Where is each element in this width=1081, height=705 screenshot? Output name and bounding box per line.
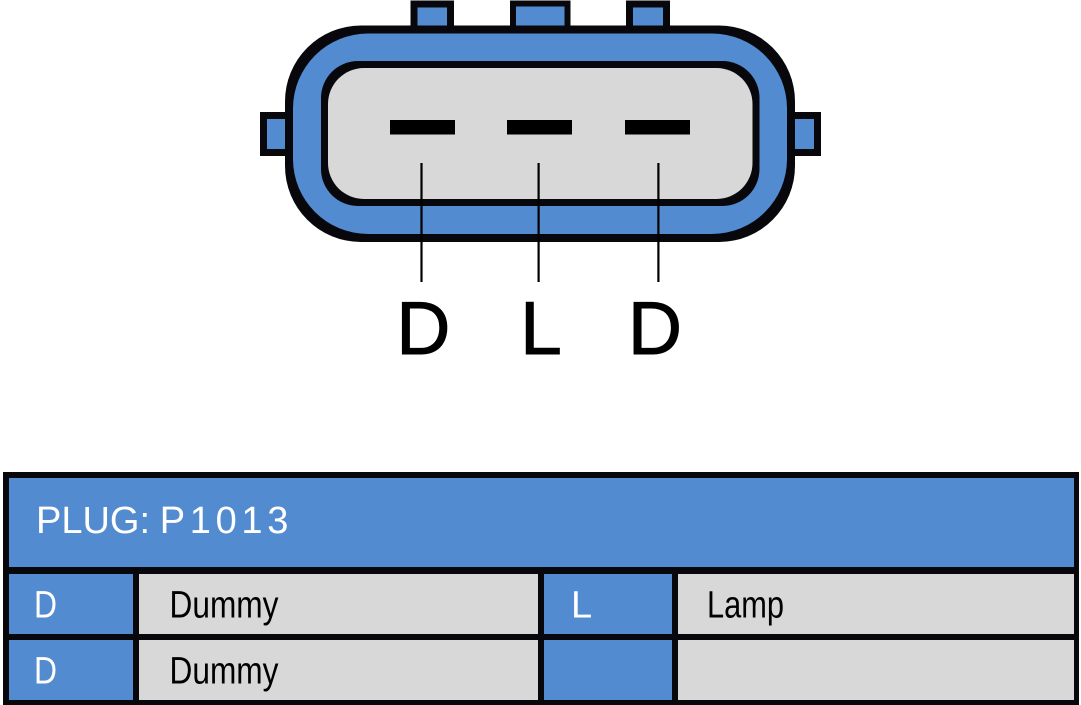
svg-text:L: L: [571, 585, 592, 627]
svg-text:D: D: [34, 651, 57, 693]
svg-text:PLUG:P1013: PLUG:P1013: [36, 500, 293, 542]
svg-text:D: D: [34, 585, 57, 627]
svg-text:D: D: [396, 286, 450, 370]
svg-text:D: D: [628, 286, 682, 370]
svg-text:L: L: [520, 286, 562, 370]
svg-text:Dummy: Dummy: [170, 585, 279, 627]
svg-text:Dummy: Dummy: [170, 651, 279, 693]
svg-text:Lamp: Lamp: [707, 585, 784, 627]
